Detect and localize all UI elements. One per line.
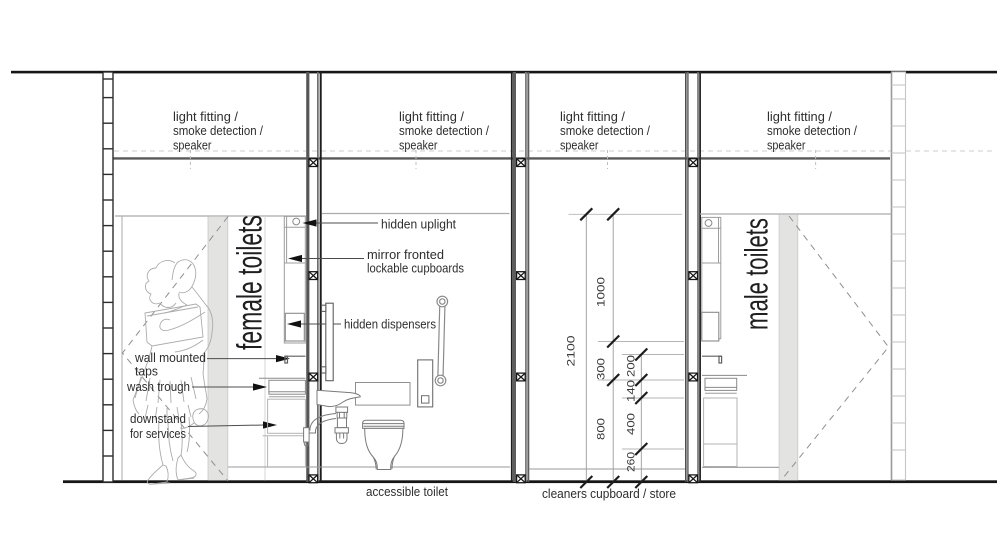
svg-text:800: 800: [596, 418, 608, 440]
svg-text:hidden dispensers: hidden dispensers: [344, 318, 436, 332]
svg-text:260: 260: [626, 452, 638, 472]
svg-text:wall mounted: wall mounted: [134, 351, 206, 365]
svg-text:400: 400: [626, 413, 638, 435]
svg-text:cleaners cupboard / store: cleaners cupboard / store: [542, 487, 676, 501]
svg-text:for services: for services: [130, 427, 186, 441]
svg-text:140: 140: [626, 380, 638, 402]
svg-text:200: 200: [626, 355, 638, 377]
svg-text:300: 300: [596, 358, 608, 380]
svg-text:accessible toilet: accessible toilet: [366, 485, 448, 499]
svg-text:taps: taps: [135, 365, 158, 379]
svg-text:2100: 2100: [566, 336, 578, 367]
svg-text:lockable cupboards: lockable cupboards: [367, 262, 464, 276]
svg-text:downstand: downstand: [130, 412, 186, 426]
svg-text:wash trough: wash trough: [126, 380, 190, 394]
svg-text:1000: 1000: [596, 277, 608, 307]
svg-text:hidden uplight: hidden uplight: [381, 218, 456, 232]
svg-text:mirror fronted: mirror fronted: [367, 248, 444, 262]
svg-text:female toilets: female toilets: [231, 215, 270, 350]
svg-text:male toilets: male toilets: [739, 218, 775, 330]
